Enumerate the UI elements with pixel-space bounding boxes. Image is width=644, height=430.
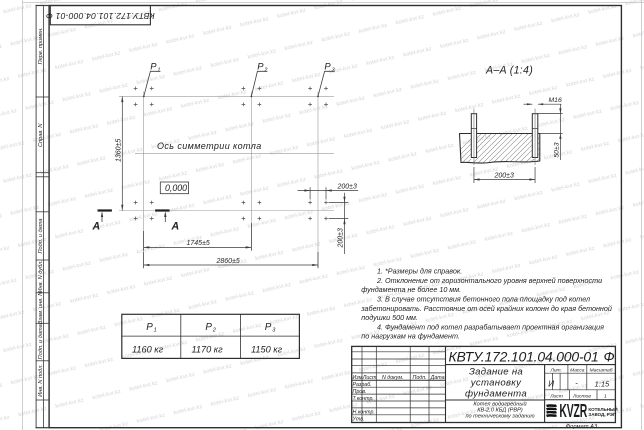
svg-text:Утв.: Утв. bbox=[353, 417, 365, 423]
svg-text:P: P bbox=[257, 61, 264, 72]
svg-text:Задание на: Задание на bbox=[469, 367, 523, 378]
svg-text:200±3: 200±3 bbox=[337, 183, 358, 190]
svg-text:подушки 500 мм.: подушки 500 мм. bbox=[361, 313, 418, 322]
svg-text:Т.контр.: Т.контр. bbox=[353, 396, 374, 402]
svg-text:1745±5: 1745±5 bbox=[187, 240, 210, 247]
svg-text:КВ-2,0 КБД (РВР): КВ-2,0 КБД (РВР) bbox=[477, 408, 523, 414]
svg-text:Взам. инв. N: Взам. инв. N bbox=[38, 291, 44, 325]
svg-text:Листов: Листов bbox=[572, 393, 591, 399]
svg-text:200±3: 200±3 bbox=[337, 228, 344, 249]
svg-text:P: P bbox=[146, 322, 153, 333]
svg-text:Лист: Лист bbox=[549, 393, 563, 399]
svg-text:Масштаб: Масштаб bbox=[590, 367, 613, 373]
svg-text:Инв. N подл.: Инв. N подл. bbox=[38, 364, 44, 397]
svg-text:Ось симметрии котла: Ось симметрии котла bbox=[157, 141, 262, 151]
svg-text:50±3: 50±3 bbox=[554, 142, 561, 157]
svg-text:1:15: 1:15 bbox=[595, 379, 611, 388]
svg-text:A: A bbox=[92, 221, 101, 233]
svg-text:фундамента: фундамента bbox=[465, 388, 527, 399]
svg-text:4. Фундамент под котел разраба: 4. Фундамент под котел разрабатывает про… bbox=[377, 322, 604, 331]
svg-text:1150 кг: 1150 кг bbox=[251, 344, 283, 354]
svg-text:Ф: Ф bbox=[604, 348, 615, 364]
svg-text:Лист: Лист bbox=[362, 375, 377, 381]
svg-text:Инв. N дубл.: Инв. N дубл. bbox=[38, 260, 44, 292]
svg-text:P: P bbox=[324, 61, 331, 72]
svg-text:1: 1 bbox=[157, 68, 160, 74]
svg-text:2. Отклонение от горизонтально: 2. Отклонение от горизонтального уровня … bbox=[376, 276, 602, 285]
svg-text:P: P bbox=[265, 322, 272, 333]
svg-text:Лит.: Лит. bbox=[549, 367, 561, 373]
svg-text:1: 1 bbox=[604, 393, 607, 399]
svg-text:Формат А3: Формат А3 bbox=[566, 424, 598, 430]
svg-text:Разраб.: Разраб. bbox=[353, 382, 372, 388]
svg-text:Пров.: Пров. bbox=[353, 389, 367, 395]
svg-text:Масса: Масса bbox=[570, 367, 585, 373]
svg-text:1. *Размеры для справок.: 1. *Размеры для справок. bbox=[377, 267, 462, 276]
svg-text:Дата: Дата bbox=[430, 375, 445, 381]
svg-text:Н.контр.: Н.контр. bbox=[353, 410, 375, 416]
svg-text:3: 3 bbox=[332, 68, 335, 74]
svg-text:КВТУ.172.101.04.000-01 Ф: КВТУ.172.101.04.000-01 Ф bbox=[46, 11, 155, 21]
svg-text:0,000: 0,000 bbox=[165, 183, 187, 193]
svg-text:1: 1 bbox=[154, 328, 157, 334]
svg-text:2: 2 bbox=[263, 68, 267, 74]
svg-text:КВТУ.172.101.04.000-01: КВТУ.172.101.04.000-01 bbox=[449, 348, 599, 364]
svg-text:КОТЕЛЬНЫЙ: КОТЕЛЬНЫЙ bbox=[588, 405, 617, 412]
svg-text:1360±5: 1360±5 bbox=[115, 139, 122, 162]
svg-text:фундамента не более 10 мм.: фундамента не более 10 мм. bbox=[361, 285, 461, 294]
svg-text:A–A (1:4): A–A (1:4) bbox=[485, 65, 533, 77]
svg-text:Подп.: Подп. bbox=[413, 375, 427, 381]
svg-text:И: И bbox=[548, 380, 554, 389]
svg-text:Перв. примен.: Перв. примен. bbox=[38, 27, 44, 64]
svg-text:KVZR: KVZR bbox=[559, 401, 587, 422]
svg-text:3. В случае отсутствия бетонно: 3. В случае отсутствия бетонного пола пл… bbox=[377, 295, 590, 304]
svg-text:ЗАВОД, РЭП: ЗАВОД, РЭП bbox=[588, 412, 616, 417]
svg-text:по нагрузкам на фундамент.: по нагрузкам на фундамент. bbox=[361, 332, 460, 341]
svg-text:A: A bbox=[171, 221, 180, 233]
svg-text:по техническому заданию: по техническому заданию bbox=[465, 414, 535, 420]
svg-text:P: P bbox=[205, 322, 212, 333]
svg-text:2860±5: 2860±5 bbox=[216, 258, 240, 265]
svg-text:Подп. и дата: Подп. и дата bbox=[38, 218, 44, 253]
svg-text:М16: М16 bbox=[549, 97, 562, 104]
svg-text:200±3: 200±3 bbox=[494, 172, 515, 179]
svg-text:P: P bbox=[150, 61, 157, 72]
svg-text:установку: установку bbox=[470, 377, 522, 388]
svg-text:Подп. и дата: Подп. и дата bbox=[38, 324, 44, 359]
svg-text:Справ. N: Справ. N bbox=[38, 123, 44, 147]
svg-text:1170 кг: 1170 кг bbox=[192, 344, 224, 354]
svg-text:1160 кг: 1160 кг bbox=[132, 344, 164, 354]
svg-text:N докум.: N докум. bbox=[382, 375, 403, 381]
svg-text:забетонировать. Расстояние от: забетонировать. Расстояние от осей крайн… bbox=[360, 304, 612, 313]
